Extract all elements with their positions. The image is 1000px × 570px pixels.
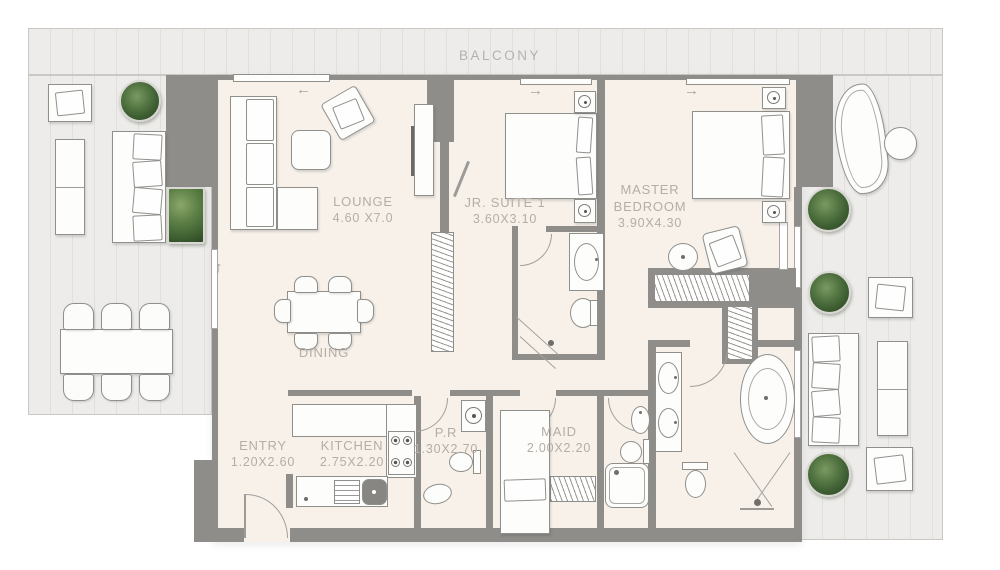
faucet-dot xyxy=(674,421,677,424)
dining-chair xyxy=(357,299,374,323)
wall-left-upper xyxy=(212,75,218,249)
wall-maid-right xyxy=(597,390,604,528)
outdoor-chair xyxy=(101,303,132,330)
rect-planter xyxy=(167,187,205,244)
wall-corner-entry xyxy=(194,460,214,542)
wall-bottom-left xyxy=(212,528,244,542)
dining-chair xyxy=(328,276,352,293)
sink-faucet-dot xyxy=(372,490,376,494)
jrbath-toilet-tank xyxy=(590,300,598,326)
room-dims: 4.60 X7.0 xyxy=(318,210,408,227)
lamp-icon xyxy=(578,95,591,108)
outdoor-chair xyxy=(63,374,94,401)
chaise-inner xyxy=(837,88,885,189)
room-name: DINING xyxy=(286,344,362,361)
faucet-dot xyxy=(639,411,642,414)
room-label-pr: P.R 1.30X2.70 xyxy=(408,424,484,458)
master-window-panel xyxy=(779,222,788,270)
room-dims: 3.60X3.10 xyxy=(456,211,554,228)
balcony-armchair xyxy=(48,84,92,122)
lamp-icon xyxy=(767,91,780,104)
maidbath-toilet-tank xyxy=(643,439,650,464)
fridge-handle-dot xyxy=(304,497,308,501)
sofa-cushion xyxy=(811,416,840,443)
dining-chair xyxy=(294,276,318,293)
room-dims: 2.75X2.20 xyxy=(308,454,396,471)
room-name: LOUNGE xyxy=(318,193,408,210)
wall-block-left xyxy=(166,75,212,187)
balcony-coffee-table xyxy=(877,341,908,436)
dining-chair xyxy=(274,299,291,323)
nightstand xyxy=(574,91,596,113)
wall-jrbath-top xyxy=(546,226,602,232)
room-name: MAID xyxy=(520,423,598,440)
wall-jrsuite-master xyxy=(597,75,605,360)
wall-pr-right xyxy=(486,396,493,528)
masterbath-toilet xyxy=(685,470,706,498)
sofa-cushion xyxy=(811,389,841,417)
armchair-pillow xyxy=(332,98,365,130)
slider-panel-lounge xyxy=(233,74,330,82)
maid-wardrobe xyxy=(550,476,596,502)
room-name: ENTRY xyxy=(224,437,302,454)
table-divider xyxy=(56,187,84,188)
sofa-cushion xyxy=(246,143,274,185)
tub-drain-dot xyxy=(764,396,768,400)
sofa-cushion xyxy=(811,335,840,362)
dining-table xyxy=(287,291,361,333)
room-name: JR. SUITE 1 xyxy=(456,194,554,211)
outdoor-chair xyxy=(63,303,94,330)
window-right-2 xyxy=(794,350,801,438)
wall-maidbath-top xyxy=(604,390,650,396)
coffee-table xyxy=(291,130,331,170)
round-planter xyxy=(808,271,851,314)
side-table xyxy=(884,127,917,160)
masterbath-toilet-tank xyxy=(682,462,708,470)
room-label-dining: DINING xyxy=(286,344,362,361)
armchair-pillow xyxy=(55,90,85,117)
stool-center-dot xyxy=(681,255,685,259)
wall-masterbath-top-a xyxy=(648,340,690,347)
tv-screen xyxy=(411,126,414,176)
slide-arrow-left-icon: ← xyxy=(296,82,311,97)
slider-panel-master xyxy=(686,78,790,85)
sofa-cushion xyxy=(246,187,274,227)
nightstand xyxy=(762,87,786,109)
outdoor-chair xyxy=(139,303,170,330)
sofa-cushion xyxy=(811,362,841,390)
outdoor-chair xyxy=(139,374,170,401)
room-dims: 1.30X2.70 xyxy=(408,441,484,458)
shower-head-icon xyxy=(548,340,554,346)
hob-burner-icon xyxy=(403,458,412,467)
slide-arrow-right-icon: → xyxy=(528,83,543,98)
shower-drain-dot xyxy=(614,470,619,475)
sofa-cushion xyxy=(132,214,162,241)
table-divider xyxy=(878,389,907,390)
room-name: MASTER BEDROOM xyxy=(611,181,689,215)
sofa-cushion xyxy=(132,133,162,160)
floor-plan: BALCONY ← → → ↑ xyxy=(0,0,1000,570)
wall-block-right xyxy=(796,75,833,187)
armchair-pillow xyxy=(875,284,906,312)
oven-icon xyxy=(334,480,360,504)
maidbath-toilet xyxy=(620,441,642,463)
round-planter xyxy=(806,187,851,232)
room-label-maid: MAID 2.00X2.20 xyxy=(520,423,598,457)
lounge-sofa-chaise xyxy=(277,187,318,230)
wall-closet-pocket xyxy=(754,268,796,308)
master-closet-rail-v xyxy=(727,306,753,360)
sofa-cushion xyxy=(246,99,274,141)
armchair-pillow xyxy=(873,454,906,484)
outdoor-chair xyxy=(101,374,132,401)
armchair-pillow xyxy=(708,234,742,268)
faucet-dot xyxy=(674,376,677,379)
wall-kitchen-stub xyxy=(286,474,293,508)
wall-lounge-jrsuite xyxy=(440,142,449,234)
wall-kitchen-top xyxy=(288,390,412,396)
wall-jrbath-left xyxy=(512,226,518,360)
round-planter xyxy=(119,80,161,122)
bed-pillow xyxy=(761,114,785,155)
bed-pillow xyxy=(576,157,594,196)
slide-arrow-up-icon: ↑ xyxy=(215,260,223,275)
master-closet-rail-h xyxy=(654,274,750,302)
balcony-armchair xyxy=(868,277,913,318)
outdoor-dining-table xyxy=(60,329,173,374)
slide-arrow-right-icon: → xyxy=(684,83,699,98)
bed-pillow xyxy=(504,478,547,501)
room-label-entry: ENTRY 1.20X2.60 xyxy=(224,437,302,471)
tv-unit xyxy=(414,104,434,196)
kitchen-counter-top xyxy=(292,404,389,437)
room-dims: 2.00X2.20 xyxy=(520,440,598,457)
room-label-lounge: LOUNGE 4.60 X7.0 xyxy=(318,193,408,227)
faucet-dot xyxy=(595,258,598,261)
wall-pr-top xyxy=(450,390,520,396)
round-planter xyxy=(806,452,851,497)
sofa-cushion xyxy=(132,160,163,188)
lamp-icon xyxy=(578,204,591,217)
room-name: P.R xyxy=(408,424,484,441)
room-label-kitchen: KITCHEN 2.75X2.20 xyxy=(308,437,396,471)
jrbath-sink xyxy=(574,243,599,281)
jrsuite-wardrobe xyxy=(431,232,454,352)
room-dims: 3.90X4.30 xyxy=(611,215,689,232)
room-name: KITCHEN xyxy=(308,437,396,454)
balcony-coffee-table xyxy=(55,139,85,235)
balcony-armchair xyxy=(866,447,913,491)
washer-drum xyxy=(465,407,482,424)
bed-pillow xyxy=(761,156,785,197)
lamp-icon xyxy=(767,205,780,218)
room-label-master: MASTER BEDROOM 3.90X4.30 xyxy=(611,181,689,232)
shower-head-bar xyxy=(740,508,774,510)
bed-pillow xyxy=(576,117,593,154)
nightstand xyxy=(762,201,786,223)
balcony-label: BALCONY xyxy=(425,48,575,63)
room-dims: 1.20X2.60 xyxy=(224,454,302,471)
shower-head-icon xyxy=(754,499,761,506)
sofa-cushion xyxy=(132,187,163,215)
nightstand xyxy=(574,199,596,223)
room-label-jrsuite: JR. SUITE 1 3.60X3.10 xyxy=(456,194,554,228)
